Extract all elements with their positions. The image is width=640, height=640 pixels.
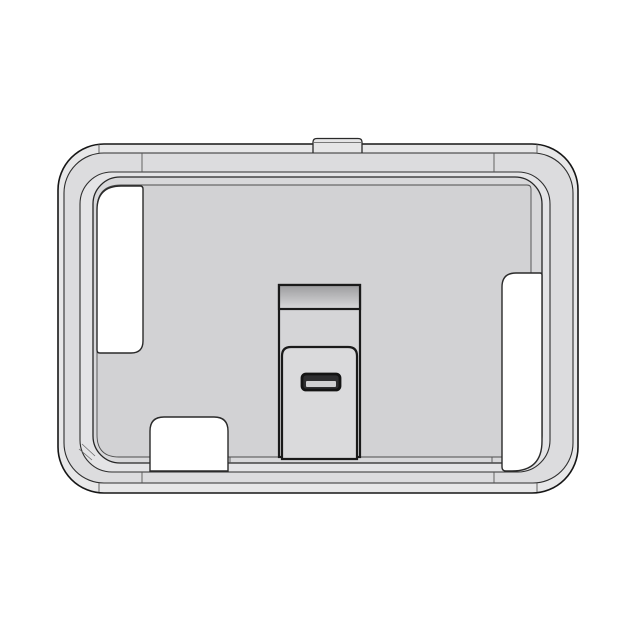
connector-slot-inner-band	[306, 381, 336, 387]
right-side-cutout	[502, 273, 542, 471]
cad-viewport	[0, 0, 640, 640]
case-render-canvas	[0, 0, 640, 640]
stand-front-card	[282, 347, 357, 459]
left-side-cutout	[97, 186, 143, 353]
top-latch-tab-fill	[313, 139, 362, 153]
bottom-left-cutout	[150, 417, 228, 471]
stand-top-block	[279, 285, 360, 309]
